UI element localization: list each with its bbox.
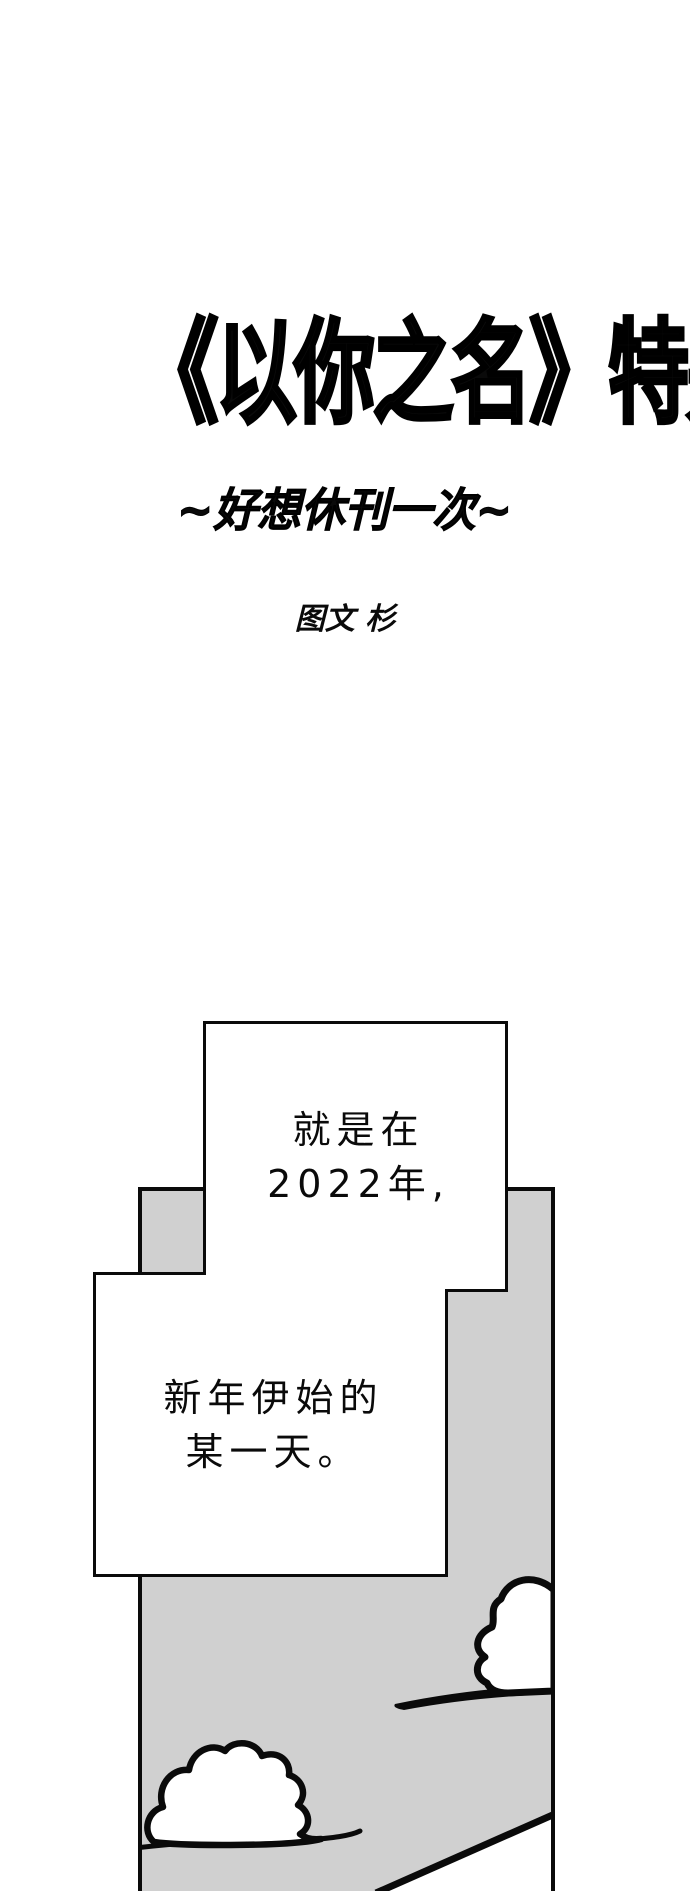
episode-title-text: 《以你之名》特别篇 xyxy=(137,312,690,437)
author-credit: 图文 杉 xyxy=(0,594,690,638)
episode-title: 《以你之名》特别篇 xyxy=(0,312,690,437)
bubble-2-line-2: 某一天。 xyxy=(179,1425,361,1479)
bubble-2-line-1: 新年伊始的 xyxy=(157,1371,383,1425)
comic-page: 《以你之名》特别篇 ~好想休刊一次~ 图文 杉 就是在 2022年, 新年伊始的… xyxy=(0,0,690,1891)
episode-subtitle: ~好想休刊一次~ xyxy=(0,474,690,540)
speech-bubble-2-text: 新年伊始的 某一天。 xyxy=(93,1272,448,1577)
bubble-1-line-1: 就是在 xyxy=(286,1103,424,1157)
cloud-left-icon xyxy=(147,1743,321,1845)
cloud-right-icon xyxy=(477,1580,551,1693)
episode-subtitle-text: ~好想休刊一次~ xyxy=(177,474,512,540)
bubble-1-line-2: 2022年, xyxy=(261,1157,450,1211)
speech-bubble-1-text: 就是在 2022年, xyxy=(203,1021,508,1292)
